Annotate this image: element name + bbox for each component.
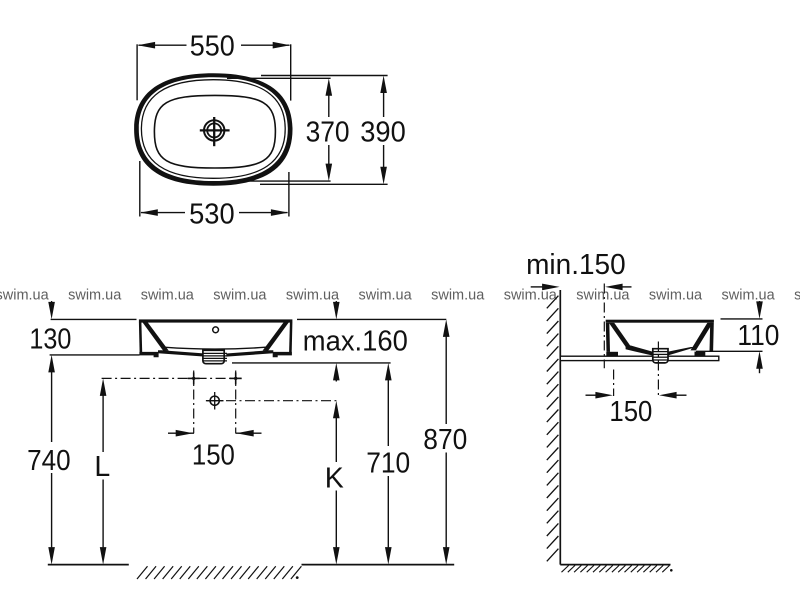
svg-text:740: 740 [27, 445, 71, 477]
svg-text:K: K [325, 462, 344, 494]
svg-text:swim.ua: swim.ua [431, 288, 485, 304]
svg-text:150: 150 [609, 396, 652, 428]
svg-text:swim.ua: swim.ua [68, 288, 122, 304]
svg-text:550: 550 [190, 31, 235, 63]
svg-text:swim.ua: swim.ua [0, 288, 50, 304]
svg-text:swim.ua: swim.ua [649, 288, 703, 304]
svg-text:swim.ua: swim.ua [141, 288, 195, 304]
svg-text:swim.ua: swim.ua [359, 288, 413, 304]
svg-text:L: L [94, 451, 110, 483]
svg-text:110: 110 [737, 320, 779, 352]
svg-text:max.160: max.160 [303, 325, 408, 357]
svg-text:870: 870 [423, 424, 467, 456]
svg-text:swim.ua: swim.ua [504, 288, 558, 304]
svg-text:swim.ua: swim.ua [722, 288, 776, 304]
svg-text:swim.ua: swim.ua [213, 288, 267, 304]
svg-text:min.150: min.150 [526, 249, 626, 281]
svg-text:150: 150 [192, 440, 235, 472]
svg-text:swim.ua: swim.ua [794, 288, 800, 304]
svg-text:swim.ua: swim.ua [286, 288, 340, 304]
svg-text:130: 130 [29, 323, 71, 355]
svg-text:530: 530 [189, 198, 235, 230]
svg-text:710: 710 [366, 448, 410, 480]
svg-text:370: 370 [306, 116, 350, 148]
svg-text:390: 390 [360, 116, 406, 148]
